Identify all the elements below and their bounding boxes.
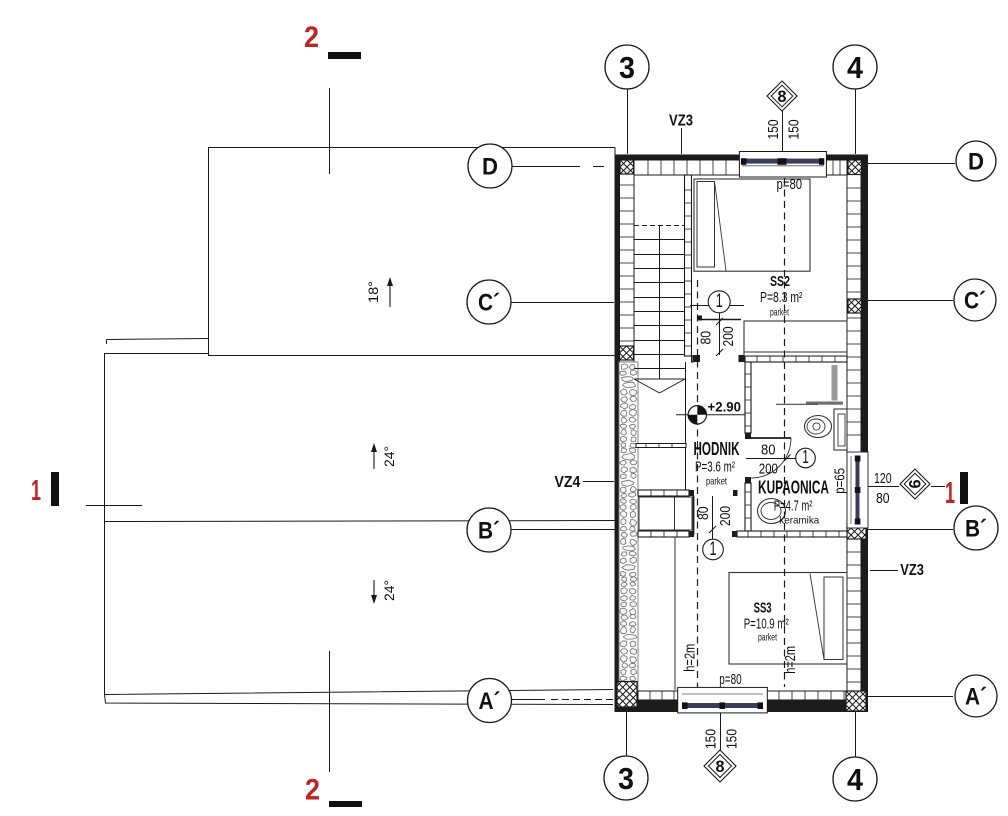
svg-text:200: 200 bbox=[718, 506, 734, 526]
svg-text:C´: C´ bbox=[478, 290, 500, 317]
svg-text:1: 1 bbox=[31, 475, 41, 507]
svg-text:2: 2 bbox=[305, 774, 320, 807]
svg-text:200: 200 bbox=[721, 327, 737, 347]
svg-text:1: 1 bbox=[945, 475, 955, 510]
svg-text:150: 150 bbox=[724, 729, 741, 749]
svg-text:8: 8 bbox=[778, 87, 787, 106]
svg-text:150: 150 bbox=[786, 120, 803, 140]
svg-text:120: 120 bbox=[874, 471, 892, 487]
svg-text:200: 200 bbox=[759, 462, 778, 478]
svg-text:8: 8 bbox=[716, 757, 725, 776]
svg-text:80: 80 bbox=[876, 491, 890, 507]
svg-text:D: D bbox=[968, 149, 984, 176]
svg-text:9: 9 bbox=[905, 480, 924, 489]
svg-text:A´: A´ bbox=[965, 684, 987, 711]
svg-text:3: 3 bbox=[618, 761, 634, 796]
svg-text:VZ3: VZ3 bbox=[900, 562, 924, 579]
svg-text:P=10.9 m²: P=10.9 m² bbox=[744, 617, 789, 633]
svg-text:+2.90: +2.90 bbox=[708, 399, 742, 414]
svg-text:parket: parket bbox=[706, 476, 727, 488]
svg-text:4: 4 bbox=[847, 50, 864, 85]
svg-text:P=3.6 m²: P=3.6 m² bbox=[695, 460, 735, 476]
svg-text:A´: A´ bbox=[479, 688, 501, 715]
svg-text:parket: parket bbox=[770, 307, 789, 319]
svg-text:VZ4: VZ4 bbox=[555, 474, 581, 491]
svg-text:SS2: SS2 bbox=[770, 274, 790, 290]
svg-text:B´: B´ bbox=[965, 516, 987, 543]
svg-text:3: 3 bbox=[619, 50, 635, 85]
svg-text:24°: 24° bbox=[382, 446, 397, 467]
svg-text:B´: B´ bbox=[478, 518, 500, 545]
svg-text:1: 1 bbox=[710, 539, 717, 560]
svg-text:24°: 24° bbox=[382, 580, 397, 601]
svg-text:VZ3: VZ3 bbox=[669, 112, 693, 129]
svg-text:h=2m: h=2m bbox=[783, 646, 799, 674]
svg-text:80: 80 bbox=[761, 443, 776, 459]
svg-text:80: 80 bbox=[699, 331, 715, 345]
svg-text:C´: C´ bbox=[964, 288, 986, 315]
svg-text:18°: 18° bbox=[366, 281, 381, 303]
svg-text:p=65: p=65 bbox=[833, 468, 849, 494]
svg-text:4: 4 bbox=[847, 762, 864, 797]
svg-text:80: 80 bbox=[696, 506, 712, 520]
svg-text:1: 1 bbox=[716, 291, 723, 312]
svg-text:1: 1 bbox=[802, 447, 809, 467]
svg-text:D: D bbox=[482, 154, 498, 181]
svg-text:150: 150 bbox=[765, 120, 782, 140]
svg-text:P=4.7 m²: P=4.7 m² bbox=[774, 499, 813, 515]
svg-text:p=80: p=80 bbox=[719, 672, 741, 688]
svg-text:parket: parket bbox=[758, 632, 777, 644]
svg-text:P=8.3 m²: P=8.3 m² bbox=[760, 290, 803, 306]
svg-text:p=80: p=80 bbox=[777, 177, 803, 193]
svg-text:HODNIK: HODNIK bbox=[694, 438, 740, 459]
svg-text:KUPAONICA: KUPAONICA bbox=[758, 477, 829, 498]
svg-text:150: 150 bbox=[703, 729, 720, 749]
svg-text:2: 2 bbox=[304, 21, 319, 54]
svg-text:SS3: SS3 bbox=[754, 601, 772, 617]
svg-text:keramika: keramika bbox=[779, 515, 819, 527]
svg-text:h=2m: h=2m bbox=[683, 644, 699, 672]
